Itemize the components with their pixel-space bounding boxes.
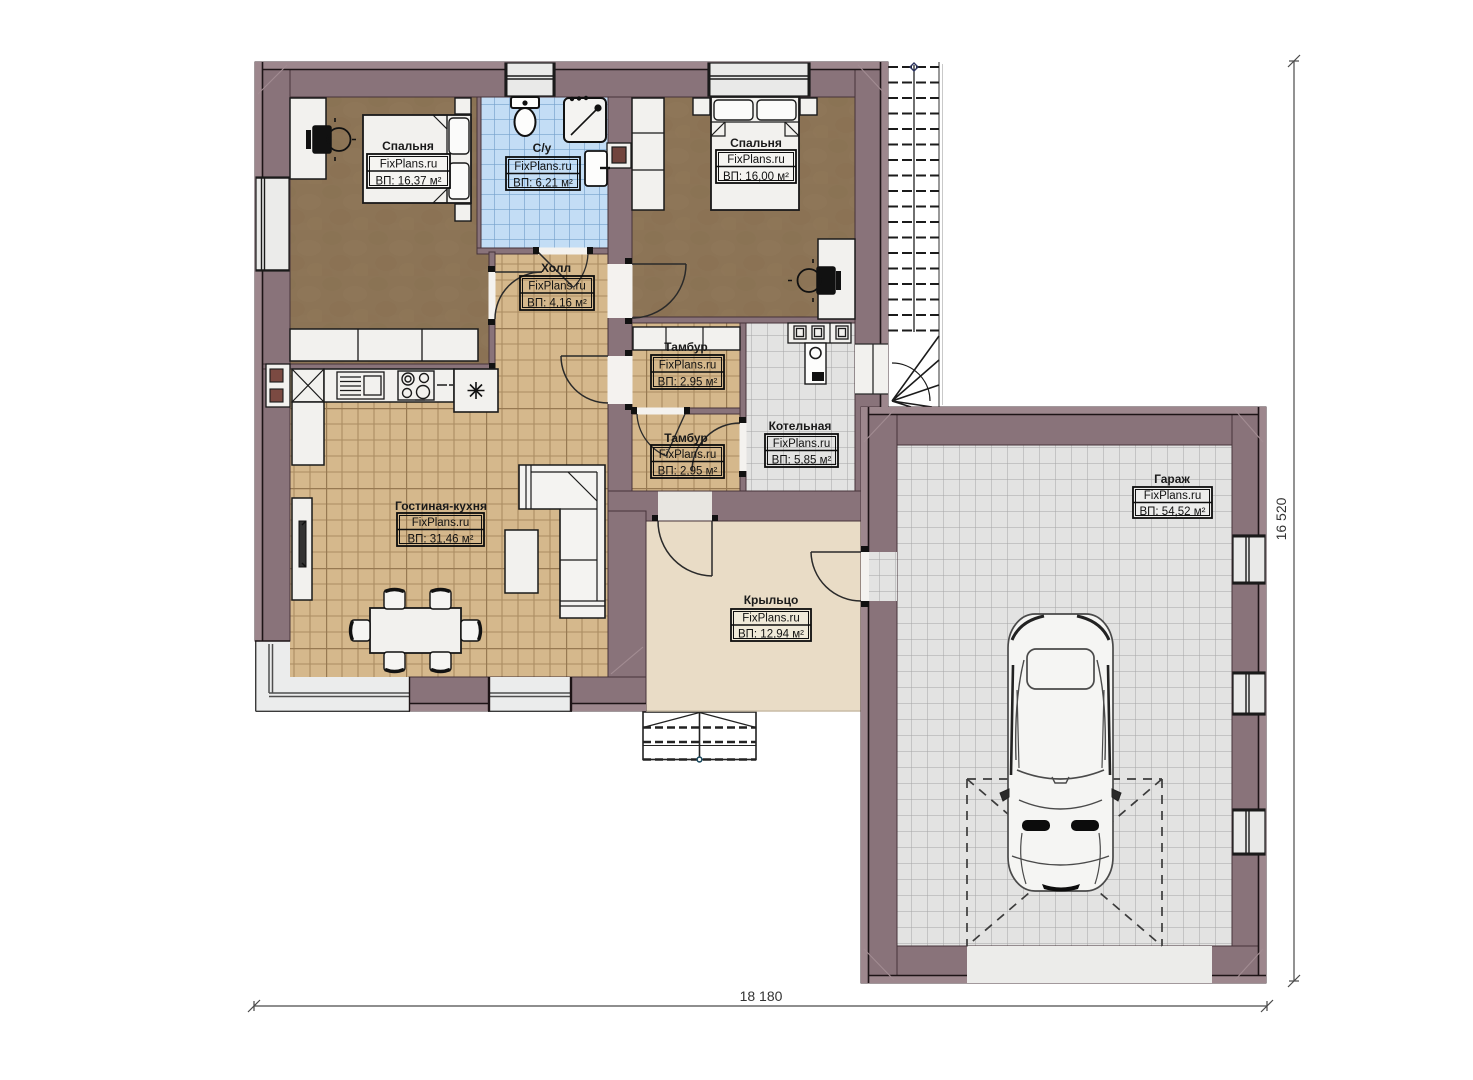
svg-text:ВП: 4,16 м²: ВП: 4,16 м² — [527, 298, 587, 310]
svg-text:Тамбур: Тамбур — [664, 340, 708, 354]
svg-text:FixPlans.ru: FixPlans.ru — [727, 154, 785, 166]
svg-text:ВП: 6,21 м²: ВП: 6,21 м² — [513, 178, 573, 190]
svg-text:ВП: 54,52 м²: ВП: 54,52 м² — [1139, 506, 1205, 518]
svg-text:FixPlans.ru: FixPlans.ru — [1144, 490, 1202, 502]
svg-text:FixPlans.ru: FixPlans.ru — [528, 281, 586, 293]
svg-text:FixPlans.ru: FixPlans.ru — [773, 438, 831, 450]
svg-text:ВП: 31,46 м²: ВП: 31,46 м² — [407, 534, 473, 546]
svg-text:Гостиная-кухня: Гостиная-кухня — [395, 499, 487, 513]
svg-text:Тамбур: Тамбур — [664, 431, 708, 445]
svg-text:ВП: 16,37 м²: ВП: 16,37 м² — [375, 176, 441, 188]
svg-text:Гараж: Гараж — [1154, 472, 1190, 486]
svg-text:FixPlans.ru: FixPlans.ru — [412, 517, 470, 529]
svg-text:Спальня: Спальня — [382, 139, 434, 153]
svg-text:Спальня: Спальня — [730, 136, 782, 150]
svg-text:ВП: 2,95 м²: ВП: 2,95 м² — [658, 377, 718, 389]
svg-text:С/у: С/у — [533, 141, 552, 155]
svg-text:FixPlans.ru: FixPlans.ru — [514, 161, 572, 173]
svg-text:ВП: 2,95 м²: ВП: 2,95 м² — [658, 466, 718, 478]
svg-text:18 180: 18 180 — [740, 988, 783, 1004]
svg-text:Холл: Холл — [541, 261, 571, 275]
svg-text:Крыльцо: Крыльцо — [744, 593, 799, 607]
svg-text:ВП: 16,00 м²: ВП: 16,00 м² — [723, 171, 789, 183]
svg-text:FixPlans.ru: FixPlans.ru — [659, 449, 717, 461]
svg-text:16 520: 16 520 — [1273, 497, 1289, 540]
svg-text:Котельная: Котельная — [769, 419, 832, 433]
svg-text:ВП: 12,94 м²: ВП: 12,94 м² — [738, 629, 804, 641]
svg-text:ВП: 5,85 м²: ВП: 5,85 м² — [772, 455, 832, 467]
svg-text:FixPlans.ru: FixPlans.ru — [742, 613, 800, 625]
svg-text:FixPlans.ru: FixPlans.ru — [659, 360, 717, 372]
svg-text:FixPlans.ru: FixPlans.ru — [380, 159, 438, 171]
